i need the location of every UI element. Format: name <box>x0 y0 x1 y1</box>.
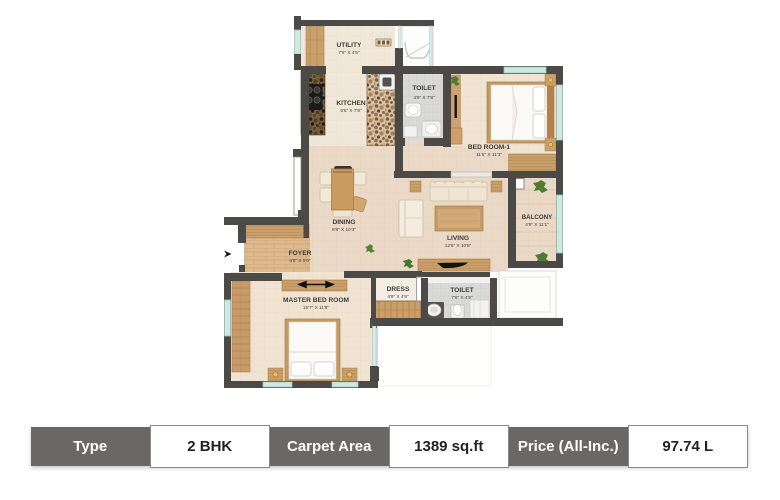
svg-text:9'8" X 10'3": 9'8" X 10'3" <box>332 227 356 232</box>
svg-text:DINING: DINING <box>332 219 355 226</box>
svg-text:7'6" X 4'5": 7'6" X 4'5" <box>338 50 360 55</box>
svg-text:DRESS: DRESS <box>387 286 410 293</box>
svg-text:MASTER BED ROOM: MASTER BED ROOM <box>283 297 349 304</box>
svg-text:4'9" X 4'9": 4'9" X 4'9" <box>387 294 409 299</box>
svg-text:7'6" X 4'9": 7'6" X 4'9" <box>451 295 473 300</box>
svg-text:4'9" X 7'8": 4'9" X 7'8" <box>413 95 435 100</box>
svg-text:LIVING: LIVING <box>447 235 469 242</box>
svg-text:9'6" X 7'8": 9'6" X 7'8" <box>340 108 362 113</box>
svg-text:UTILITY: UTILITY <box>337 42 363 49</box>
svg-text:FOYER: FOYER <box>289 250 312 257</box>
svg-text:TOILET: TOILET <box>450 287 473 294</box>
svg-text:12'6" X 10'8": 12'6" X 10'8" <box>445 243 472 248</box>
svg-text:15'7" X 11'8": 15'7" X 11'8" <box>303 305 329 310</box>
svg-text:11'6" X 11'3": 11'6" X 11'3" <box>476 152 502 157</box>
svg-text:BALCONY: BALCONY <box>522 214 553 221</box>
svg-text:4'9" X 11'1": 4'9" X 11'1" <box>525 222 549 227</box>
svg-text:KITCHEN: KITCHEN <box>336 100 366 107</box>
svg-text:BED ROOM-1: BED ROOM-1 <box>468 144 510 151</box>
svg-text:6'8" X 5'0": 6'8" X 5'0" <box>289 258 311 263</box>
svg-text:TOILET: TOILET <box>412 85 435 92</box>
